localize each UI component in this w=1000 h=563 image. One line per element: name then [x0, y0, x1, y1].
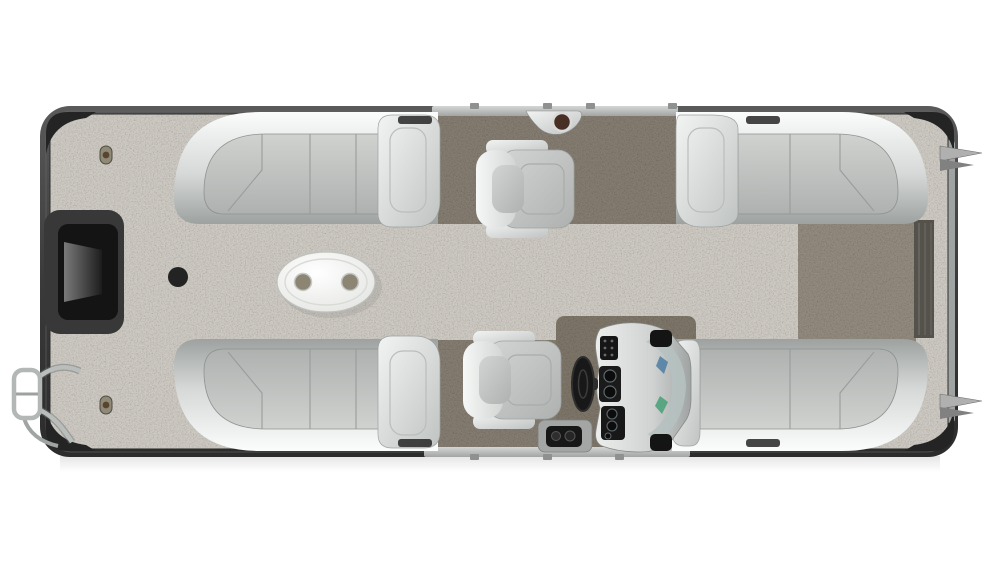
stern-gate [914, 220, 934, 338]
chair-backrest-inner [492, 165, 524, 213]
switch-panel [600, 336, 618, 360]
rail-hinge-icon [615, 454, 624, 460]
rail-hinge-icon [470, 103, 479, 109]
boat-render [0, 0, 1000, 563]
bow-recess-step [64, 242, 102, 302]
lounge-front-port [174, 112, 440, 227]
backrest-vent-icon [398, 439, 432, 447]
captain-chair-helm [463, 331, 561, 429]
lounge-front-starboard [676, 112, 928, 227]
lounge-armrest [676, 115, 738, 227]
backrest-vent-icon [398, 116, 432, 124]
lounge-armrest [378, 336, 440, 448]
gauge-icon [605, 433, 611, 439]
throttle-knob [565, 431, 575, 441]
gauge-icon [604, 370, 616, 382]
gauge-icon [607, 409, 617, 419]
rail-hinge-icon [543, 454, 552, 460]
backrest-vent-icon [746, 439, 780, 447]
gauge-icon [604, 386, 616, 398]
pontoon-floorplan-image [0, 0, 1000, 563]
rail-hinge-icon [668, 103, 677, 109]
captain-chair-forward [476, 140, 574, 238]
console-mount-pad [650, 434, 672, 451]
deck-latch-pin [103, 152, 110, 159]
table-top [277, 252, 375, 312]
deck-latch-pin [103, 402, 110, 409]
rail-hinge-icon [586, 103, 595, 109]
backrest-vent-icon [746, 116, 780, 124]
lounge-cushion [700, 349, 898, 429]
hull-ground-shadow [60, 456, 940, 472]
lounge-rear-port [174, 336, 440, 451]
rail-hinge-icon [543, 103, 552, 109]
table-pedestal-floor-mount [168, 267, 188, 287]
drink-icon [553, 113, 571, 131]
bow-boarding-recess [44, 210, 124, 334]
console-mount-pad [650, 330, 672, 347]
chair-backrest-inner [479, 356, 511, 404]
rail-hinge-icon [470, 454, 479, 460]
gauge-icon [607, 421, 617, 431]
steering-wheel [572, 357, 594, 411]
lounge-cushion [738, 134, 898, 214]
table-cupholder [295, 274, 312, 291]
stern-walkway-carpet [798, 216, 916, 342]
lounge-armrest [378, 115, 440, 227]
throttle-knob [552, 432, 561, 441]
throttle-unit [538, 420, 592, 452]
lounge-rear-starboard [672, 339, 928, 451]
table-cupholder [342, 274, 359, 291]
